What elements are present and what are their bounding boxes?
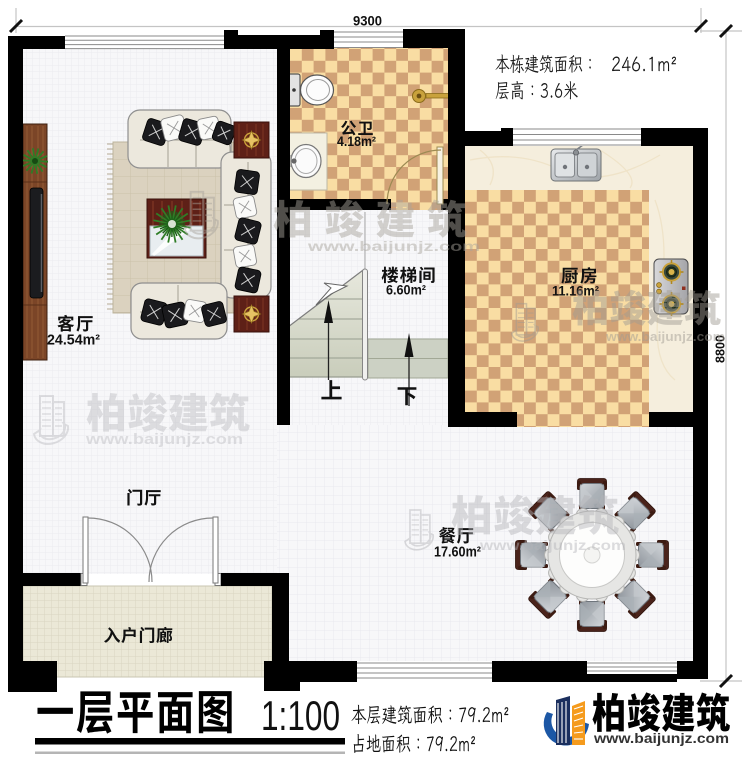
svg-text:1:100: 1:100 (261, 692, 340, 739)
svg-text:www.baijunjz.com: www.baijunjz.com (479, 537, 626, 553)
svg-text:17.60m²: 17.60m² (434, 545, 481, 561)
svg-text:www.baijunjz.com: www.baijunjz.com (605, 329, 725, 344)
svg-text:4.18m²: 4.18m² (337, 134, 376, 149)
svg-text:24.54m²: 24.54m² (47, 333, 100, 349)
svg-text:www.baijunjz.com: www.baijunjz.com (85, 432, 243, 448)
svg-text:www.baijunjz.com: www.baijunjz.com (307, 238, 480, 254)
svg-text:www.baijunjz.com: www.baijunjz.com (593, 731, 729, 746)
svg-text:11.16m²: 11.16m² (552, 283, 599, 299)
svg-text:9300: 9300 (353, 13, 382, 29)
svg-text:6.60m²: 6.60m² (386, 282, 426, 298)
